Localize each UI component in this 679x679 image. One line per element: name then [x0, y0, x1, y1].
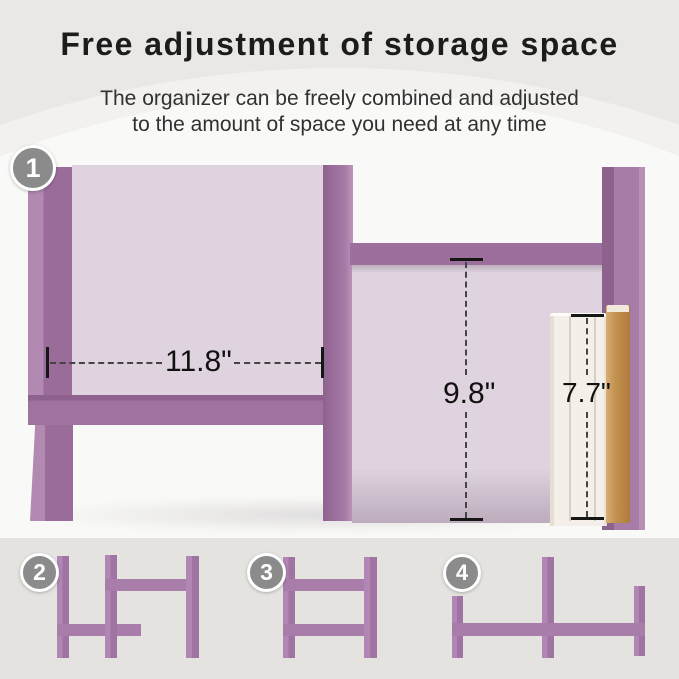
product-infographic: Free adjustment of storage space The org… [0, 0, 679, 679]
variant-4-post [542, 557, 554, 658]
book-dimension-dash [586, 318, 588, 375]
variant-3-post [364, 557, 377, 658]
organizer-left-leg [30, 425, 73, 521]
variant-2-post [105, 555, 117, 658]
page-subtitle-line-2: to the amount of space you need at any t… [0, 113, 679, 137]
variant-4-shelf [452, 623, 645, 636]
height-dimension-tick-top [450, 258, 483, 261]
page-title: Free adjustment of storage space [0, 26, 679, 63]
height-dimension-tick-bottom [450, 518, 483, 521]
variant-3-shelf [283, 579, 377, 591]
variant-2-post [186, 556, 199, 658]
book-crease [569, 316, 571, 521]
page-subtitle-line-1: The organizer can be freely combined and… [0, 87, 679, 111]
organizer-top-shelf [350, 243, 645, 265]
step-1-badge: 1 [10, 145, 56, 191]
step-4-badge: 4 [443, 554, 481, 592]
width-dimension-label: 11.8" [165, 345, 232, 379]
width-dimension-dash [50, 362, 162, 364]
height-dimension-label: 9.8" [443, 377, 495, 411]
tan-book-pages [607, 305, 629, 312]
tan-book [606, 305, 630, 523]
width-dimension-tick-left [46, 347, 49, 378]
variant-2-shelf [57, 624, 141, 636]
organizer-middle-divider [323, 165, 353, 521]
step-3-badge: 3 [247, 553, 286, 592]
shelf-shadow [352, 265, 602, 273]
book-dimension-tick-bottom [571, 517, 604, 520]
book-dimension-label: 7.7" [562, 377, 611, 409]
step-2-badge: 2 [20, 553, 59, 592]
variants-strip [0, 538, 679, 679]
variant-2-shelf [105, 579, 190, 591]
variant-3-shelf [283, 624, 377, 636]
variant-4-post [634, 586, 645, 656]
height-dimension-dash [465, 412, 467, 518]
width-dimension-tick-right [321, 347, 324, 378]
book-crease [594, 316, 596, 521]
book-dimension-tick-top [571, 314, 604, 317]
organizer-bottom-shelf [28, 395, 358, 425]
book-dimension-dash [586, 412, 588, 517]
white-book [550, 313, 607, 526]
height-dimension-dash [465, 262, 467, 375]
width-dimension-dash [234, 362, 321, 364]
